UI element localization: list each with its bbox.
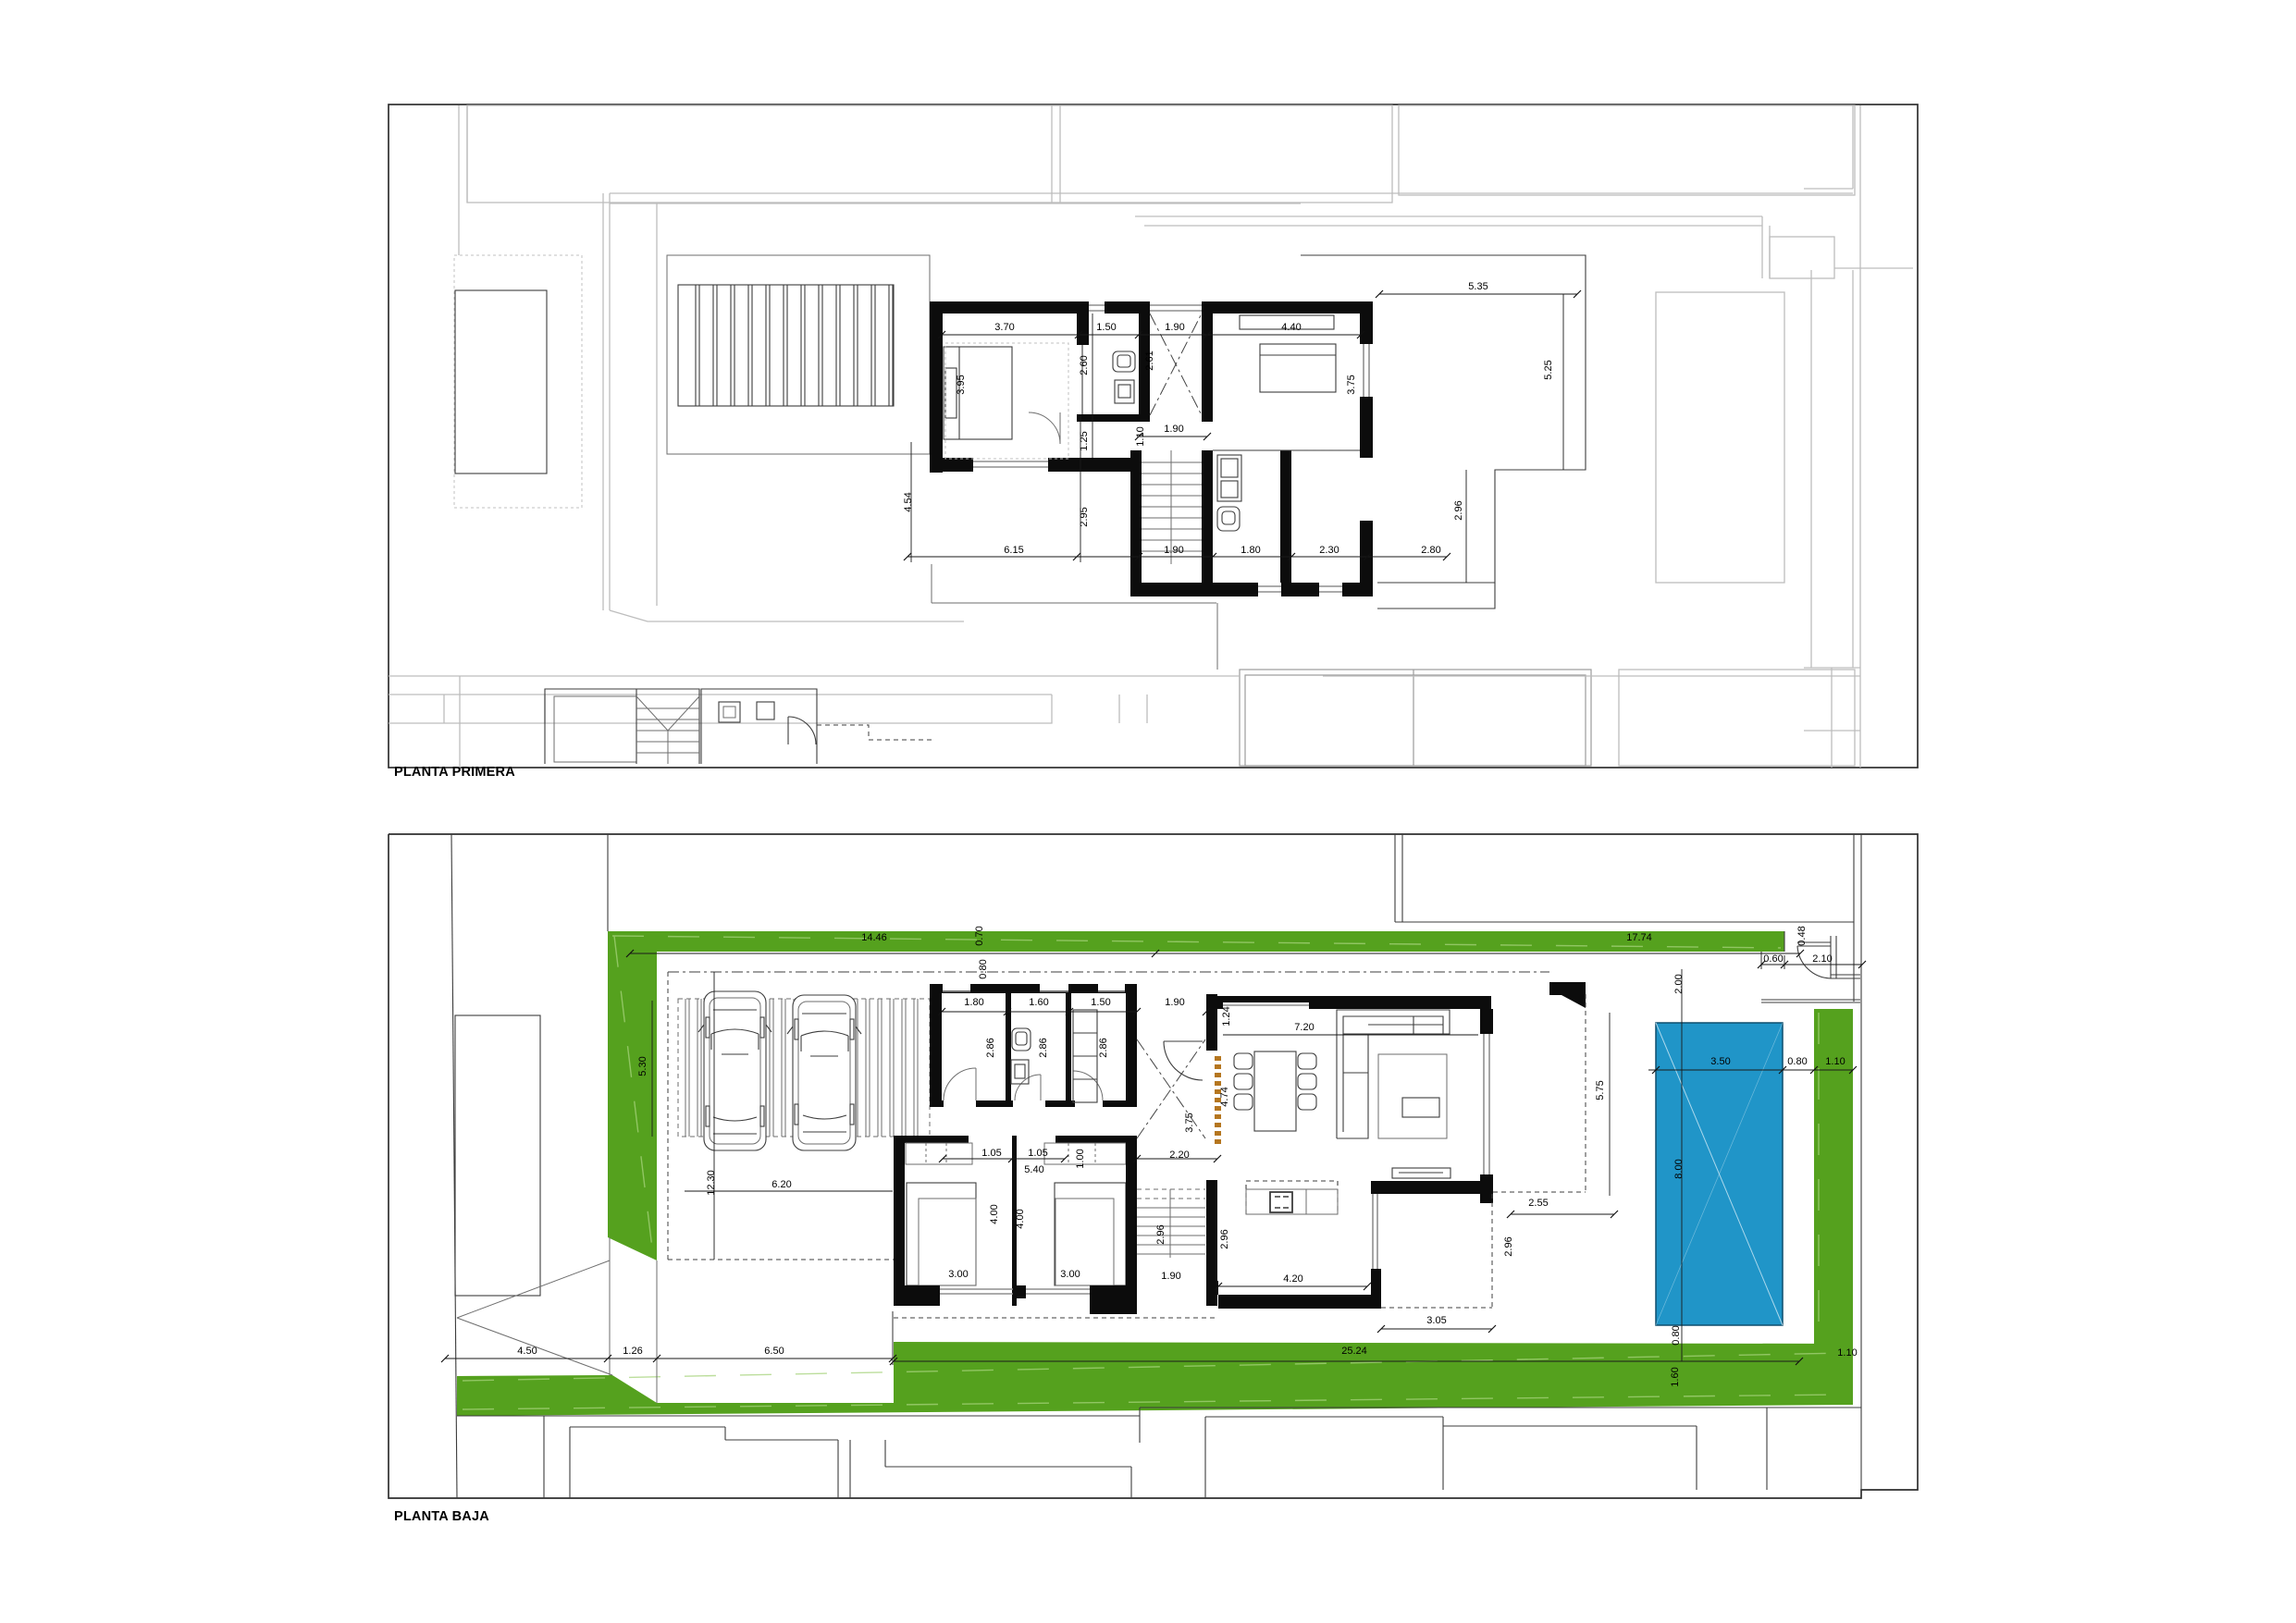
svg-text:1.80: 1.80 bbox=[964, 997, 983, 1008]
svg-text:3.05: 3.05 bbox=[1426, 1315, 1446, 1326]
svg-text:17.74: 17.74 bbox=[1626, 932, 1652, 943]
svg-text:2.00: 2.00 bbox=[1673, 974, 1685, 993]
svg-text:1.05: 1.05 bbox=[981, 1148, 1001, 1159]
svg-text:0.80: 0.80 bbox=[1671, 1325, 1682, 1345]
svg-text:2.10: 2.10 bbox=[1812, 953, 1832, 965]
svg-text:2.55: 2.55 bbox=[1528, 1198, 1548, 1209]
svg-text:12.30: 12.30 bbox=[706, 1170, 717, 1196]
svg-text:1.90: 1.90 bbox=[1165, 997, 1184, 1008]
svg-text:4.50: 4.50 bbox=[517, 1346, 537, 1357]
svg-text:2.86: 2.86 bbox=[1098, 1038, 1109, 1057]
svg-text:0.48: 0.48 bbox=[1796, 926, 1808, 945]
svg-text:2.86: 2.86 bbox=[1038, 1038, 1049, 1057]
svg-text:3.00: 3.00 bbox=[948, 1269, 968, 1280]
svg-text:2.96: 2.96 bbox=[1219, 1229, 1230, 1248]
svg-text:1.80: 1.80 bbox=[1241, 545, 1260, 556]
svg-text:4.00: 4.00 bbox=[1015, 1209, 1026, 1228]
svg-text:4.00: 4.00 bbox=[989, 1204, 1000, 1223]
svg-text:0.80: 0.80 bbox=[978, 959, 989, 978]
svg-text:5.25: 5.25 bbox=[1543, 360, 1554, 379]
svg-text:1.90: 1.90 bbox=[1161, 1271, 1180, 1282]
svg-text:2.86: 2.86 bbox=[985, 1038, 996, 1057]
svg-text:0.70: 0.70 bbox=[974, 926, 985, 945]
svg-text:6.50: 6.50 bbox=[764, 1346, 784, 1357]
svg-text:2.60: 2.60 bbox=[1079, 355, 1090, 375]
svg-text:5.35: 5.35 bbox=[1468, 281, 1487, 292]
svg-text:1.05: 1.05 bbox=[1028, 1148, 1047, 1159]
svg-text:1.26: 1.26 bbox=[623, 1346, 642, 1357]
svg-text:4.40: 4.40 bbox=[1281, 322, 1301, 333]
svg-text:1.90: 1.90 bbox=[1164, 424, 1183, 435]
svg-text:3.95: 3.95 bbox=[956, 375, 967, 394]
svg-text:1.00: 1.00 bbox=[1075, 1149, 1086, 1168]
svg-text:3.00: 3.00 bbox=[1060, 1269, 1080, 1280]
svg-text:6.15: 6.15 bbox=[1004, 545, 1023, 556]
svg-text:1.90: 1.90 bbox=[1164, 545, 1183, 556]
svg-text:3.75: 3.75 bbox=[1184, 1113, 1195, 1132]
svg-text:5.40: 5.40 bbox=[1024, 1164, 1043, 1175]
svg-text:2.96: 2.96 bbox=[1155, 1224, 1167, 1244]
svg-text:1.50: 1.50 bbox=[1091, 997, 1110, 1008]
svg-text:8.00: 8.00 bbox=[1673, 1159, 1685, 1178]
svg-text:1.90: 1.90 bbox=[1165, 322, 1184, 333]
svg-text:1.50: 1.50 bbox=[1096, 322, 1116, 333]
svg-text:1.10: 1.10 bbox=[1825, 1056, 1845, 1067]
svg-text:14.46: 14.46 bbox=[861, 932, 887, 943]
svg-text:3.50: 3.50 bbox=[1710, 1056, 1730, 1067]
svg-text:1.60: 1.60 bbox=[1029, 997, 1048, 1008]
svg-text:1.10: 1.10 bbox=[1837, 1347, 1857, 1359]
svg-text:5.75: 5.75 bbox=[1595, 1080, 1606, 1100]
svg-text:6.20: 6.20 bbox=[772, 1179, 791, 1190]
svg-text:PLANTA BAJA: PLANTA BAJA bbox=[394, 1509, 489, 1524]
svg-text:4.74: 4.74 bbox=[1219, 1087, 1230, 1106]
svg-text:PLANTA PRIMERA: PLANTA PRIMERA bbox=[394, 765, 515, 780]
svg-text:3.70: 3.70 bbox=[994, 322, 1014, 333]
svg-text:2.96: 2.96 bbox=[1503, 1236, 1514, 1256]
svg-text:7.20: 7.20 bbox=[1294, 1022, 1314, 1033]
svg-text:0.60: 0.60 bbox=[1763, 953, 1783, 965]
svg-text:25.24: 25.24 bbox=[1341, 1346, 1367, 1357]
svg-text:5.30: 5.30 bbox=[637, 1056, 648, 1076]
svg-text:1.60: 1.60 bbox=[1670, 1367, 1681, 1386]
svg-text:4.54: 4.54 bbox=[903, 492, 914, 511]
svg-text:2.96: 2.96 bbox=[1453, 500, 1464, 520]
svg-text:0.80: 0.80 bbox=[1787, 1056, 1807, 1067]
svg-text:3.75: 3.75 bbox=[1346, 375, 1357, 394]
svg-text:4.20: 4.20 bbox=[1283, 1273, 1302, 1285]
svg-text:2.61: 2.61 bbox=[1144, 350, 1155, 370]
svg-text:1.24: 1.24 bbox=[1221, 1006, 1232, 1026]
svg-text:2.30: 2.30 bbox=[1319, 545, 1339, 556]
svg-text:2.80: 2.80 bbox=[1421, 545, 1440, 556]
